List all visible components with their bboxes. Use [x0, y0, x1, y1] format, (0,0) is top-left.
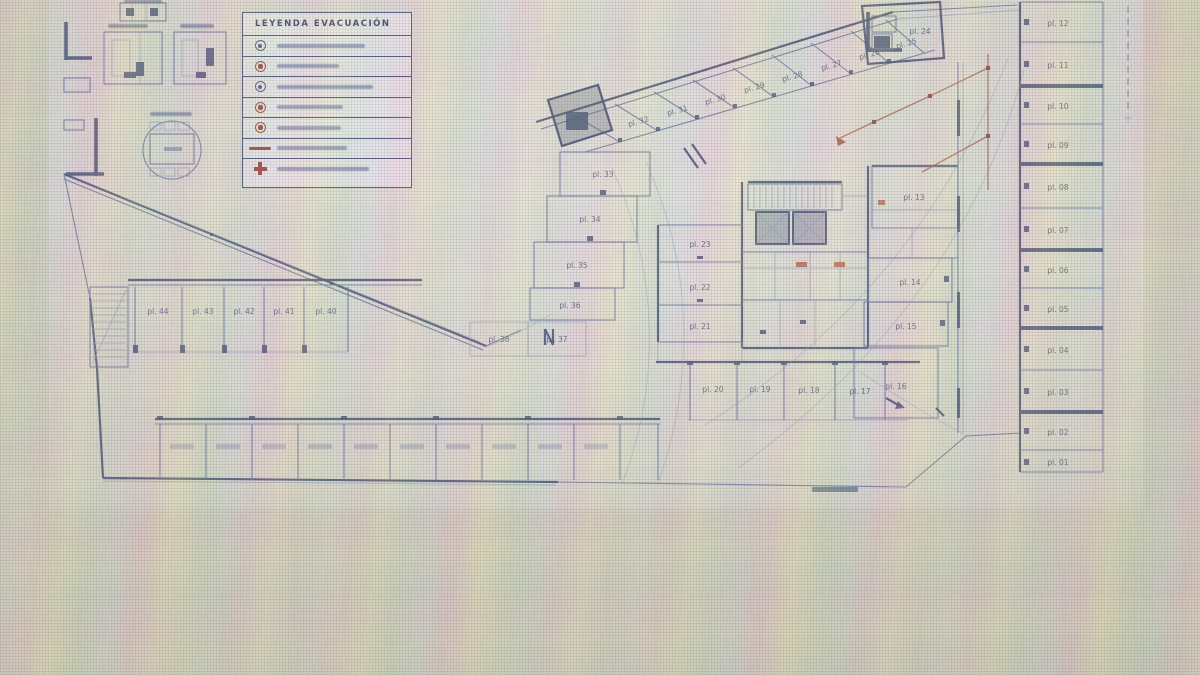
legend-row — [243, 35, 411, 56]
stall-label: pl. 08 — [1047, 183, 1068, 192]
illegible-note — [812, 487, 858, 492]
stall-label: pl. 13 — [903, 193, 924, 202]
evacuation-legend: LEYENDA EVACUACIÓN — [242, 12, 412, 188]
illegible-detail-title — [150, 112, 192, 116]
site-boundary — [64, 174, 1021, 487]
legend-row — [243, 117, 411, 138]
stall-label: pl. 18 — [798, 386, 819, 395]
evacuation-route-lines — [836, 54, 990, 190]
stall-label: pl. 22 — [689, 283, 710, 292]
stall-label: pl. 29 — [743, 80, 766, 95]
stall-label: pl. 14 — [899, 278, 920, 287]
illegible-detail-title — [108, 24, 148, 28]
aisle-arrows — [545, 144, 944, 416]
stall-label: pl. 31 — [666, 103, 689, 118]
diagonal-parking-band: pl. 32 pl. 31 pl. 30 pl. 29 pl. 28 pl. 2… — [536, 5, 1020, 152]
legend-label-illegible — [277, 126, 341, 130]
stall-label: pl. 09 — [1047, 141, 1068, 150]
stall-label: pl. 33 — [592, 170, 613, 179]
stall-label: pl. 20 — [702, 385, 723, 394]
stall-label: pl. 11 — [1047, 61, 1068, 70]
stepped-parking-column: pl. 33 pl. 34 pl. 35 pl. 36 pl. 38 pl. 3… — [470, 152, 650, 356]
red-line-symbol-icon — [249, 147, 271, 151]
red-circle-symbol-icon — [255, 61, 266, 72]
stall-label: pl. 03 — [1047, 388, 1068, 397]
stall-label: pl. 30 — [704, 92, 727, 107]
stall-label: pl. 02 — [1047, 428, 1068, 437]
bottom-parking-row: pl. 20 pl. 19 pl. 18 pl. 17 — [656, 361, 920, 420]
stall-label: pl. 23 — [689, 240, 710, 249]
red-cross-symbol-icon — [254, 162, 267, 175]
floor-plan-drawing: pl. 44 pl. 43 pl. 42 pl. 41 pl. 40 — [0, 0, 1200, 675]
legend-row — [243, 56, 411, 77]
stall-label: pl. 10 — [1047, 102, 1068, 111]
legend-label-illegible — [277, 64, 339, 68]
stall-label: pl. 15 — [895, 322, 916, 331]
circle-symbol-icon — [255, 40, 266, 51]
stall-label: pl. 36 — [559, 301, 580, 310]
stall-label: pl. 21 — [689, 322, 710, 331]
illegible-stall-labels — [170, 444, 608, 449]
stall-label: pl. 17 — [849, 387, 870, 396]
red-door-mark — [878, 200, 885, 205]
core-block — [742, 166, 868, 348]
stall-label: pl. 06 — [1047, 266, 1068, 275]
stall-label: pl. 28 — [781, 69, 804, 84]
stall-label: pl. 42 — [233, 307, 254, 316]
stall-label: pl. 16 — [885, 382, 906, 391]
bottom-left-parking-row — [155, 416, 660, 480]
stall-label: pl. 01 — [1047, 458, 1068, 467]
legend-label-illegible — [277, 146, 347, 150]
illegible-detail-title — [180, 24, 214, 28]
stall-label: pl. 04 — [1047, 346, 1068, 355]
stall-label: pl. 38 — [488, 335, 509, 344]
stall-label: pl. 07 — [1047, 226, 1068, 235]
stall-label: pl. 32 — [627, 114, 650, 129]
red-door-mark — [834, 262, 845, 267]
stall-label: pl. 27 — [820, 58, 843, 73]
red-circle-symbol-icon — [255, 122, 266, 133]
legend-row — [243, 138, 411, 159]
illegible-detail-title — [124, 0, 162, 3]
right-aisle — [957, 62, 963, 433]
stairs-left — [90, 287, 128, 367]
core-right-column: pl. 13 pl. 14 pl. 15 pl. 16 — [854, 166, 958, 418]
stall-label: pl. 35 — [566, 261, 587, 270]
left-parking-row: pl. 44 pl. 43 pl. 42 pl. 41 pl. 40 — [128, 280, 422, 353]
red-door-mark — [796, 262, 807, 267]
legend-label-illegible — [277, 105, 343, 109]
right-parking-column: pl. 12 pl. 11 pl. 10 pl. 09 pl. 08 pl. 0… — [1020, 2, 1103, 472]
legend-row — [243, 158, 411, 179]
stall-label: pl. 40 — [315, 307, 336, 316]
stall-label: pl. 43 — [192, 307, 213, 316]
stall-label: pl. 24 — [909, 27, 930, 36]
stall-label: pl. 41 — [273, 307, 294, 316]
red-circle-symbol-icon — [255, 102, 266, 113]
room-detail-callouts — [104, 32, 226, 84]
legend-label-illegible — [277, 44, 365, 48]
stall-label: pl. 12 — [1047, 19, 1068, 28]
mid-parking-column: pl. 23 pl. 22 pl. 21 — [658, 225, 742, 362]
legend-title: LEYENDA EVACUACIÓN — [243, 13, 411, 35]
legend-row — [243, 97, 411, 118]
round-table-detail — [143, 121, 201, 179]
legend-label-illegible — [277, 167, 369, 171]
stall-label: pl. 34 — [579, 215, 600, 224]
stall-label: pl. 05 — [1047, 305, 1068, 314]
stall-label: pl. 44 — [147, 307, 168, 316]
dashed-property-line — [1124, 6, 1132, 122]
legend-row — [243, 76, 411, 97]
legend-label-illegible — [277, 85, 373, 89]
circle-symbol-icon — [255, 81, 266, 92]
photographed-screen: pl. 44 pl. 43 pl. 42 pl. 41 pl. 40 — [0, 0, 1200, 675]
top-left-wall-details — [64, 3, 166, 176]
